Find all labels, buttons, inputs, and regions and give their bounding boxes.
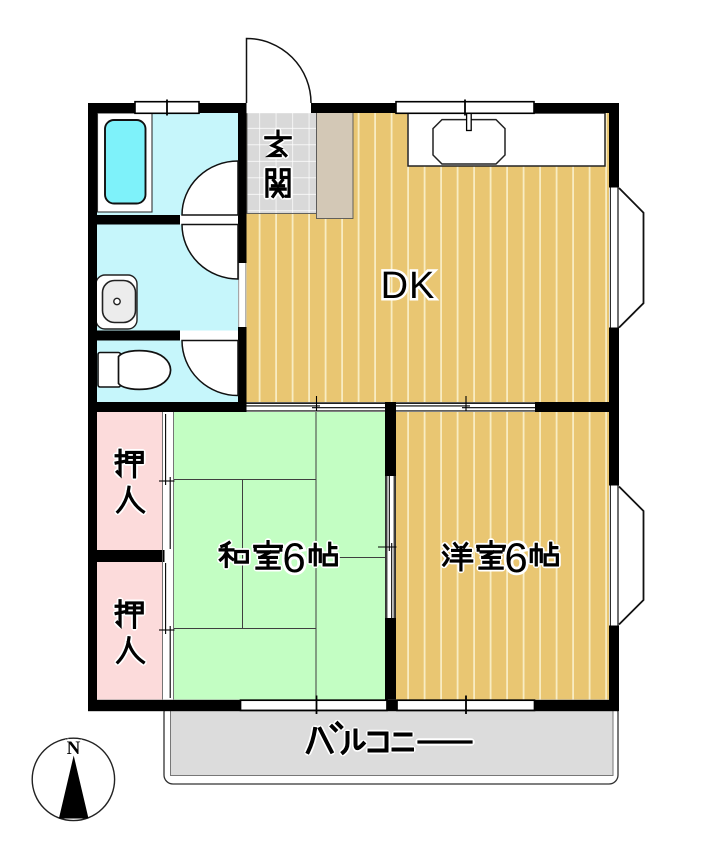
svg-text:6: 6 — [504, 534, 527, 581]
svg-text:6: 6 — [282, 534, 305, 581]
svg-text:DK: DK — [381, 265, 436, 307]
svg-text:N: N — [67, 738, 81, 759]
